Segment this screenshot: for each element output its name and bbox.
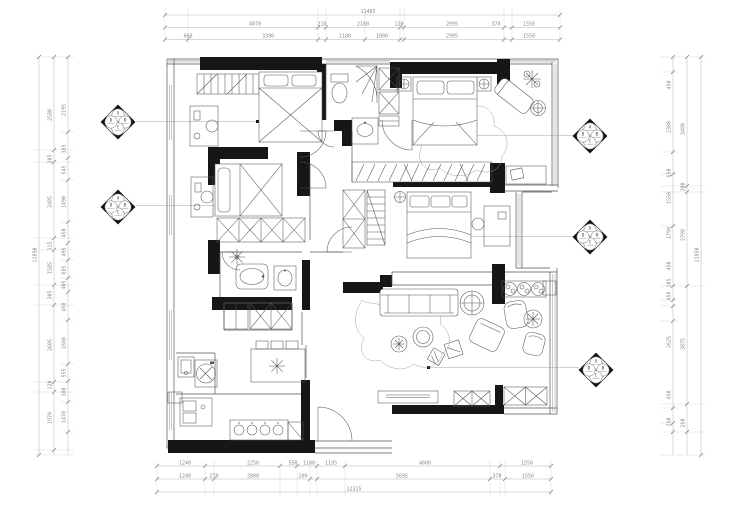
dim-label: 1550 — [523, 34, 535, 40]
dim-label: 450 — [62, 302, 68, 311]
dim-label: 200 — [298, 474, 307, 480]
drawer-unit — [367, 190, 385, 245]
dim-label: 1680 — [62, 337, 68, 349]
study-bedroom — [327, 162, 510, 258]
nightstand-right — [477, 77, 491, 91]
dim-label: 2485 — [48, 196, 54, 208]
dim-label: 3480 — [681, 123, 687, 135]
dim-label: 1195 — [325, 461, 337, 467]
dim-label: 1240 — [179, 474, 191, 480]
dim-label: 1550 — [523, 22, 535, 28]
elevation-marker — [573, 220, 607, 254]
dim-label: 385 — [62, 144, 68, 153]
dim-label: 2380 — [667, 121, 673, 133]
washbasin — [352, 118, 378, 144]
dim-label: 650 — [667, 168, 673, 177]
balcony-chair-2 — [521, 331, 546, 357]
tall-cabinet — [343, 190, 365, 248]
dim-label: 1970 — [48, 412, 54, 424]
elevation-marker — [101, 105, 135, 139]
plant — [523, 70, 541, 88]
dim-label: 305 — [48, 290, 54, 299]
dim-label: 1470 — [62, 411, 68, 423]
master-bed — [413, 77, 477, 145]
armchair — [468, 317, 506, 353]
dim-label: 2800 — [247, 474, 259, 480]
dim-label: 1490 — [62, 196, 68, 208]
dim-label: 2250 — [247, 461, 259, 467]
dim-label: 495 — [62, 247, 68, 256]
dim-label: 660 — [183, 34, 192, 40]
dim-label: 11850 — [695, 247, 701, 262]
dim-label: 2195 — [62, 104, 68, 116]
floor-plant — [391, 336, 407, 352]
entry — [318, 407, 352, 441]
dimension-extension-lines — [34, 8, 705, 496]
washing-machine — [195, 360, 217, 387]
elevation-marker — [573, 119, 607, 153]
dim-label: 450 — [667, 390, 673, 399]
utility-sink — [178, 357, 194, 377]
side-table-lamp — [460, 291, 484, 315]
dim-label: 115 — [48, 241, 54, 250]
bed — [215, 164, 282, 216]
room-center-dot — [256, 120, 259, 123]
living-room — [378, 289, 506, 406]
shoe-cabinet — [454, 391, 490, 406]
dimension-labels-bottom: 1240 2250 550 1100 1195 4600 1550 1240 2… — [179, 461, 534, 493]
dim-label: 300 — [681, 182, 687, 191]
door-swing — [222, 252, 240, 270]
dim-label: 110 — [394, 22, 403, 28]
balcony-plant — [524, 310, 542, 328]
dim-label: 4070 — [249, 22, 261, 28]
flower-boxes — [502, 281, 546, 297]
tv-cabinet — [378, 391, 438, 403]
pouf — [413, 327, 433, 347]
dim-label: 450 — [667, 80, 673, 89]
dim-label: 3390 — [262, 34, 274, 40]
stove — [230, 420, 288, 440]
fan-coil — [531, 101, 546, 116]
dining-table — [251, 341, 305, 382]
ceiling-lamp — [229, 249, 245, 265]
dimension-labels-left: 11850 2580 205 2485 115 1585 305 2605 12… — [33, 104, 68, 424]
balcony — [502, 281, 556, 405]
dimension-lines — [37, 13, 703, 494]
dim-label: 2580 — [48, 109, 54, 121]
dimension-labels-top: 11485 4070 210 2180 110 2995 370 1550 66… — [183, 9, 535, 40]
dim-label: 2790 — [681, 229, 687, 241]
dim-label: 450 — [667, 291, 673, 300]
floor-pillows — [427, 340, 463, 366]
hallway — [229, 249, 245, 265]
toilet — [331, 74, 348, 103]
dim-label: 405 — [62, 280, 68, 289]
floor-plan-canvas: A B C D 11485 4070 210 2180 — [0, 0, 750, 505]
dim-label: 550 — [288, 461, 297, 467]
bed — [407, 192, 471, 258]
dim-label: 250 — [667, 417, 673, 426]
dim-label: 12325 — [346, 487, 361, 493]
corner-box — [543, 281, 556, 295]
elevation-marker — [579, 353, 613, 387]
bedroom1 — [190, 72, 326, 157]
dim-label: 1550 — [521, 461, 533, 467]
dim-label: 2605 — [48, 339, 54, 351]
elevation-marker — [101, 190, 135, 224]
wardrobe — [197, 74, 259, 94]
room-center-dot — [427, 366, 430, 369]
dim-label: 4600 — [419, 461, 431, 467]
dim-label: 5695 — [396, 474, 408, 480]
dim-label: 11850 — [33, 247, 39, 262]
dim-label: 1000 — [376, 34, 388, 40]
dim-label: 3875 — [681, 338, 687, 350]
dim-label: 1180 — [339, 34, 351, 40]
desk — [190, 106, 218, 146]
dim-label: 210 — [317, 22, 326, 28]
dim-label: 545 — [62, 165, 68, 174]
dimension-labels-right: 11850 3480 300 2790 3875 260 450 2380 65… — [667, 80, 701, 427]
window-bench — [506, 166, 546, 184]
dim-label: 380 — [62, 387, 68, 396]
dim-label: 450 — [62, 228, 68, 237]
washbasin — [274, 266, 296, 290]
dim-label: 1585 — [48, 262, 54, 274]
bathroom2 — [222, 252, 296, 290]
dim-label: 270 — [209, 474, 218, 480]
door-swing — [382, 120, 412, 150]
dim-label: 555 — [62, 368, 68, 377]
dim-label: 685 — [62, 265, 68, 274]
desk — [472, 206, 510, 246]
dim-label: 1790 — [667, 227, 673, 239]
dim-label: 205 — [48, 154, 54, 163]
elevation-leader-lines — [136, 120, 579, 369]
bed — [259, 72, 322, 142]
dim-label: 1100 — [303, 461, 315, 467]
dim-label: 370 — [491, 22, 500, 28]
fridge — [288, 422, 303, 440]
entry-door-swing — [318, 407, 352, 441]
bathtub — [236, 264, 268, 289]
dim-label: 2995 — [446, 34, 458, 40]
balcony-cabinet — [504, 387, 547, 405]
wardrobe — [217, 218, 305, 242]
dim-label: 1550 — [667, 192, 673, 204]
dim-label: 1550 — [522, 474, 534, 480]
dim-label: 11485 — [360, 9, 375, 15]
dim-label: 2625 — [667, 336, 673, 348]
floor-plan-page: { "title": "apartment-floor-plan", "colo… — [0, 0, 750, 505]
dim-label: 2995 — [446, 22, 458, 28]
dim-label: 105 — [667, 278, 673, 287]
sliding-wardrobe — [352, 162, 492, 182]
corner-shower — [356, 66, 377, 103]
dim-label: 120 — [48, 380, 54, 389]
dim-label: 260 — [681, 418, 687, 427]
sofa — [380, 289, 458, 316]
dim-label: 370 — [492, 474, 501, 480]
kitchen-sink — [180, 398, 212, 426]
dim-label: 1240 — [179, 461, 191, 467]
dim-label: 2180 — [357, 22, 369, 28]
dim-label: 450 — [667, 261, 673, 270]
kitchen — [168, 303, 305, 440]
